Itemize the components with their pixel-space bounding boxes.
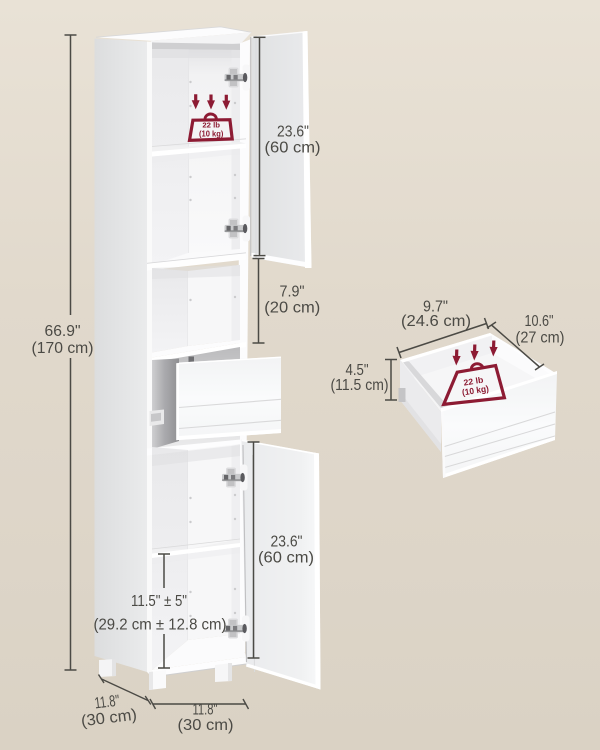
svg-text:(60 cm): (60 cm) bbox=[258, 550, 314, 567]
svg-text:(24.6 cm): (24.6 cm) bbox=[401, 313, 471, 330]
svg-text:7.9": 7.9" bbox=[280, 283, 305, 300]
svg-text:(11.5 cm): (11.5 cm) bbox=[331, 377, 389, 394]
svg-text:(170 cm): (170 cm) bbox=[32, 340, 94, 357]
svg-text:11.5" ± 5": 11.5" ± 5" bbox=[131, 593, 187, 610]
svg-text:(60 cm): (60 cm) bbox=[265, 140, 321, 157]
svg-text:(29.2 cm ± 12.8 cm): (29.2 cm ± 12.8 cm) bbox=[94, 617, 227, 634]
svg-text:(30 cm): (30 cm) bbox=[178, 717, 234, 734]
svg-text:(10 kg): (10 kg) bbox=[199, 129, 224, 138]
svg-text:11.8": 11.8" bbox=[193, 702, 218, 719]
svg-text:23.6": 23.6" bbox=[277, 124, 309, 141]
svg-text:10.6": 10.6" bbox=[525, 313, 554, 330]
svg-text:(20 cm): (20 cm) bbox=[264, 299, 320, 316]
svg-text:66.9": 66.9" bbox=[45, 323, 81, 340]
svg-text:(27 cm): (27 cm) bbox=[516, 330, 565, 347]
svg-text:22 lb: 22 lb bbox=[202, 120, 220, 129]
svg-text:23.6": 23.6" bbox=[271, 534, 303, 551]
